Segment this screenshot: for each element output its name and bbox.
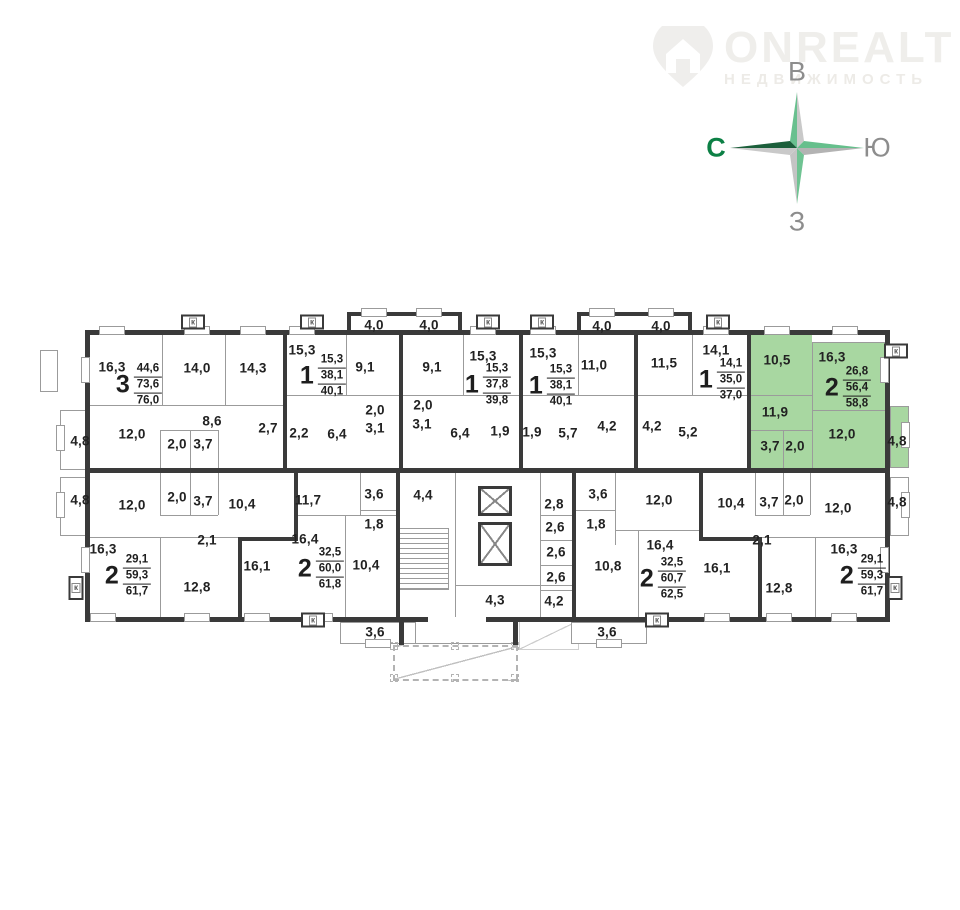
room-area-label: 5,7 (558, 426, 577, 441)
wall-segment (519, 335, 523, 468)
apartment-rooms-count: 1 (465, 373, 479, 398)
wall-segment (815, 537, 816, 617)
wall-segment (540, 590, 572, 591)
room-area-label: 3,7 (760, 439, 779, 454)
room-area-label: 3,6 (365, 625, 384, 640)
apartment-area-value: 56,4 (843, 381, 871, 397)
room-area-label: 4,0 (419, 318, 438, 333)
room-area-label: 3,6 (588, 487, 607, 502)
vent-marker: к (181, 315, 205, 330)
wall-segment (85, 468, 890, 473)
wall-segment (347, 312, 351, 332)
apartment-summary: 229,159,361,7 (840, 553, 886, 600)
room-area-label: 6,4 (450, 426, 469, 441)
room-area-label: 4,0 (651, 319, 670, 334)
wall-segment (458, 312, 462, 332)
room-area-label: 16,1 (703, 561, 730, 576)
window (90, 613, 116, 622)
wall-segment (399, 335, 403, 468)
wall-segment (812, 342, 886, 343)
room-area-label: 11,7 (295, 493, 321, 508)
apartment-area-value: 38,1 (318, 369, 346, 385)
room-area-label: 3,7 (193, 437, 212, 452)
room-area-label: 4,8 (70, 493, 89, 508)
entrance-canopy (519, 620, 579, 650)
room-area-label: 2,0 (785, 439, 804, 454)
room-area-label: 14,0 (183, 361, 210, 376)
room-area-label: 10,8 (594, 559, 621, 574)
vent-marker-label: к (72, 583, 80, 593)
apartment-areas: 15,338,140,1 (547, 363, 575, 410)
room-area-label: 15,3 (529, 346, 556, 361)
apartment-areas: 26,856,458,8 (843, 365, 871, 412)
wall-segment (396, 473, 400, 617)
compass-star-icon (722, 83, 872, 213)
window (56, 492, 65, 518)
compass: В С Ю З (690, 50, 905, 250)
wall-segment (572, 473, 576, 617)
room-area-label: 16,1 (243, 559, 270, 574)
apartment-area-value: 26,8 (843, 365, 871, 381)
room-area-label: 4,3 (485, 593, 504, 608)
compass-west-letter: З (789, 207, 805, 238)
room-area-label: 14,3 (239, 361, 266, 376)
wall-segment (345, 515, 346, 617)
wall-segment (751, 395, 812, 396)
room-area-label: 2,1 (752, 533, 771, 548)
apartment-area-value: 40,1 (318, 384, 346, 399)
apartment-area-value: 38,1 (547, 379, 575, 395)
wall-segment (758, 537, 762, 617)
compass-north-letter: С (706, 133, 726, 164)
vent-marker: к (645, 613, 669, 628)
wall-segment (360, 510, 396, 511)
wall-segment (540, 540, 572, 541)
room-area-label: 12,0 (118, 498, 145, 513)
floor-plan-page: ONREALT НЕДВИЖИМОСТЬ В С Ю З (0, 0, 960, 910)
apartment-summary: 115,337,839,8 (465, 362, 511, 409)
apartment-areas: 32,560,762,5 (658, 556, 686, 603)
window (56, 425, 65, 451)
room-area-label: 12,8 (183, 580, 210, 595)
apartment-area-value: 61,7 (123, 584, 151, 599)
vent-marker: к (530, 315, 554, 330)
room-area-label: 9,1 (355, 360, 374, 375)
porch-mark (390, 674, 398, 682)
room-area-label: 2,8 (544, 497, 563, 512)
wall-segment (404, 643, 514, 644)
room-area-label: 3,6 (597, 625, 616, 640)
window (766, 613, 792, 622)
apartment-area-value: 35,0 (717, 373, 745, 389)
wall-segment (575, 510, 615, 511)
elevator-shaft-icon (478, 522, 512, 566)
wall-segment (513, 622, 518, 645)
apartment-area-value: 37,8 (483, 378, 511, 394)
wall-segment (190, 473, 191, 515)
wall-segment (577, 312, 581, 332)
apartment-area-value: 39,8 (483, 393, 511, 408)
room-area-label: 4,8 (70, 434, 89, 449)
apartment-areas: 15,337,839,8 (483, 362, 511, 409)
room-area-label: 2,6 (546, 545, 565, 560)
wall-segment (399, 622, 404, 645)
wall-segment (455, 473, 456, 617)
room-area-label: 3,1 (412, 417, 431, 432)
apartment-rooms-count: 2 (825, 376, 839, 401)
vent-marker-label: к (653, 615, 661, 625)
porch-mark (390, 642, 398, 650)
vent-marker-label: к (484, 317, 492, 327)
room-area-label: 4,2 (642, 419, 661, 434)
wall-segment (747, 335, 751, 468)
wall-segment (540, 515, 572, 516)
apartment-summary: 115,338,140,1 (529, 363, 575, 410)
wall-segment (540, 473, 541, 617)
apartment-area-value: 59,3 (858, 569, 886, 585)
apartment-area-value: 60,7 (658, 572, 686, 588)
room-area-label: 2,0 (365, 403, 384, 418)
room-area-label: 14,1 (702, 343, 729, 358)
room-area-label: 3,7 (193, 494, 212, 509)
wall-segment (160, 430, 161, 468)
apartment-area-value: 60,0 (316, 562, 344, 578)
wall-segment (283, 335, 287, 468)
wall-segment (751, 430, 812, 431)
room-area-label: 4,4 (413, 488, 432, 503)
apartment-area-value: 37,0 (717, 388, 745, 403)
wall-segment (812, 342, 813, 468)
room-area-label: 2,2 (289, 426, 308, 441)
apartment-summary: 114,135,037,0 (699, 357, 745, 404)
apartment-summary: 232,560,762,5 (640, 556, 686, 603)
porch-mark (451, 642, 459, 650)
apartment-area-value: 15,3 (318, 353, 346, 369)
entrance-door-gap (428, 617, 486, 623)
vent-marker-label: к (309, 615, 317, 625)
window (704, 613, 730, 622)
vent-marker-label: к (189, 317, 197, 327)
wall-segment (755, 473, 756, 515)
room-area-label: 10,4 (717, 496, 744, 511)
window (764, 326, 790, 335)
wall-segment (578, 335, 579, 395)
room-area-label: 11,0 (581, 358, 607, 373)
apartment-rooms-count: 1 (300, 364, 314, 389)
stairs-icon (399, 528, 449, 590)
apartment-area-value: 44,6 (134, 362, 162, 378)
room-area-label: 2,7 (258, 421, 277, 436)
wall-segment (225, 335, 226, 405)
apartment-rooms-count: 2 (298, 557, 312, 582)
wall-segment (238, 537, 242, 617)
room-area-label: 10,4 (352, 558, 379, 573)
room-area-label: 2,0 (413, 398, 432, 413)
room-area-label: 4,0 (592, 319, 611, 334)
wall-segment (540, 565, 572, 566)
apartment-area-value: 15,3 (547, 363, 575, 379)
vent-marker: к (476, 315, 500, 330)
vent-marker: к (706, 315, 730, 330)
window (832, 326, 858, 335)
room-area-label: 6,4 (327, 427, 346, 442)
wall-segment (160, 537, 161, 617)
room-area-label: 4,0 (364, 318, 383, 333)
porch-mark (511, 674, 519, 682)
window (648, 308, 674, 317)
room-area-label: 2,0 (167, 490, 186, 505)
vent-marker: к (884, 344, 908, 359)
apartment-area-value: 40,1 (547, 394, 575, 409)
window (244, 613, 270, 622)
apartment-summary: 115,338,140,1 (300, 353, 346, 400)
room-area-label: 4,8 (887, 434, 906, 449)
balcony-outline (40, 350, 58, 392)
apartment-rooms-count: 3 (116, 373, 130, 398)
apartment-area-value: 59,3 (123, 569, 151, 585)
window (831, 613, 857, 622)
apartment-area-value: 61,7 (858, 584, 886, 599)
room-area-label: 10,5 (763, 353, 790, 368)
vent-marker: к (300, 315, 324, 330)
wall-segment (755, 515, 810, 516)
apartment-summary: 232,560,061,8 (298, 546, 344, 593)
apartment-area-value: 61,8 (316, 577, 344, 592)
wall-segment (688, 312, 692, 332)
vent-marker: к (301, 613, 325, 628)
room-area-label: 16,3 (818, 350, 845, 365)
apartment-rooms-count: 2 (105, 564, 119, 589)
room-area-label: 12,0 (645, 493, 672, 508)
vent-marker-label: к (308, 317, 316, 327)
wall-segment (615, 530, 699, 531)
room-area-label: 16,4 (646, 538, 673, 553)
window (416, 308, 442, 317)
room-area-label: 2,0 (784, 493, 803, 508)
apartment-areas: 15,338,140,1 (318, 353, 346, 400)
room-area-label: 3,1 (365, 421, 384, 436)
wall-segment (238, 537, 298, 541)
wall-segment (810, 473, 811, 515)
wall-segment (160, 473, 161, 515)
vent-marker-label: к (892, 346, 900, 356)
room-area-label: 2,0 (167, 437, 186, 452)
apartment-areas: 32,560,061,8 (316, 546, 344, 593)
compass-south-letter: Ю (863, 133, 890, 164)
room-area-label: 4,2 (597, 419, 616, 434)
apartment-summary[interactable]: 226,856,458,8 (825, 365, 871, 412)
room-area-label: 1,9 (490, 424, 509, 439)
wall-segment (634, 335, 638, 468)
wall-segment (218, 430, 219, 468)
apartment-area-value: 62,5 (658, 587, 686, 602)
apartment-area-value: 15,3 (483, 362, 511, 378)
apartment-area-value: 76,0 (134, 393, 162, 408)
apartment-area-value: 14,1 (717, 357, 745, 373)
room-area-label: 8,6 (202, 414, 221, 429)
apartment-areas: 29,159,361,7 (858, 553, 886, 600)
apartment-area-value: 29,1 (123, 553, 151, 569)
room-area-label: 4,8 (887, 495, 906, 510)
wall-segment (190, 430, 191, 468)
vent-marker-label: к (714, 317, 722, 327)
apartment-rooms-count: 1 (699, 368, 713, 393)
wall-segment (360, 473, 361, 515)
apartment-rooms-count: 2 (840, 564, 854, 589)
room-area-label: 3,6 (364, 487, 383, 502)
apartment-summary: 229,159,361,7 (105, 553, 151, 600)
vent-marker: к (69, 576, 84, 600)
window (880, 357, 889, 383)
room-area-label: 1,8 (586, 517, 605, 532)
wall-segment (783, 430, 784, 468)
room-area-label: 12,0 (824, 501, 851, 516)
wall-segment (455, 585, 572, 586)
apartment-area-value: 32,5 (316, 546, 344, 562)
apartment-areas: 29,159,361,7 (123, 553, 151, 600)
wall-segment (463, 335, 464, 395)
apartment-areas: 44,673,676,0 (134, 362, 162, 409)
wall-segment (160, 430, 218, 431)
room-area-label: 12,8 (765, 581, 792, 596)
wall-segment (699, 473, 703, 541)
room-area-label: 1,8 (364, 517, 383, 532)
room-area-label: 4,2 (544, 594, 563, 609)
window (184, 613, 210, 622)
vent-marker-label: к (538, 317, 546, 327)
wall-segment (218, 473, 219, 515)
wall-segment (160, 515, 218, 516)
elevator-shaft-icon (478, 486, 512, 516)
room-area-label: 1,9 (522, 425, 541, 440)
compass-east-letter: В (788, 57, 806, 88)
wall-segment (692, 335, 693, 395)
apartment-rooms-count: 2 (640, 567, 654, 592)
window (99, 326, 125, 335)
window (240, 326, 266, 335)
window (361, 308, 387, 317)
room-area-label: 3,7 (759, 495, 778, 510)
window (81, 357, 90, 383)
apartment-rooms-count: 1 (529, 374, 543, 399)
window (596, 639, 622, 648)
vent-marker-label: к (891, 583, 899, 593)
vent-marker: к (888, 576, 903, 600)
room-area-label: 11,9 (762, 405, 788, 420)
window (589, 308, 615, 317)
room-area-label: 16,4 (291, 532, 318, 547)
apartment-area-value: 58,8 (843, 396, 871, 411)
room-area-label: 5,2 (678, 425, 697, 440)
window (365, 639, 391, 648)
apartment-area-value: 73,6 (134, 378, 162, 394)
room-area-label: 12,0 (118, 427, 145, 442)
porch-mark (451, 674, 459, 682)
apartment-area-value: 32,5 (658, 556, 686, 572)
room-area-label: 11,5 (651, 356, 677, 371)
apartment-area-value: 29,1 (858, 553, 886, 569)
apartment-areas: 14,135,037,0 (717, 357, 745, 404)
room-area-label: 12,0 (828, 427, 855, 442)
room-area-label: 10,4 (228, 497, 255, 512)
wall-segment (762, 537, 885, 538)
room-area-label: 2,6 (545, 520, 564, 535)
room-area-label: 2,1 (197, 533, 216, 548)
room-area-label: 9,1 (422, 360, 441, 375)
wall-segment (615, 473, 616, 545)
room-area-label: 2,6 (546, 570, 565, 585)
wall-segment (638, 530, 639, 617)
apartment-summary: 344,673,676,0 (116, 362, 162, 409)
